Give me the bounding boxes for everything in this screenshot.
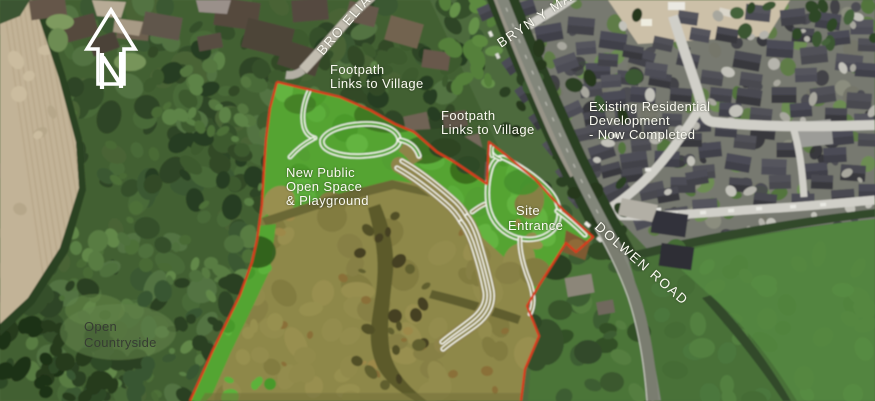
svg-text:Footpath: Footpath [330, 62, 385, 77]
svg-text:Existing Residential: Existing Residential [589, 99, 710, 114]
svg-text:Footpath: Footpath [441, 108, 496, 123]
svg-text:Open Space: Open Space [286, 179, 362, 194]
svg-text:Countryside: Countryside [84, 335, 157, 350]
svg-text:Entrance: Entrance [508, 218, 563, 233]
svg-text:Site: Site [516, 203, 540, 218]
svg-text:Links to Village: Links to Village [330, 76, 424, 91]
svg-text:Development: Development [589, 113, 670, 128]
svg-text:& Playground: & Playground [286, 193, 369, 208]
svg-text:New Public: New Public [286, 165, 355, 180]
svg-text:Links to Village: Links to Village [441, 122, 535, 137]
svg-text:Open: Open [84, 319, 117, 334]
svg-text:- Now Completed: - Now Completed [589, 127, 695, 142]
